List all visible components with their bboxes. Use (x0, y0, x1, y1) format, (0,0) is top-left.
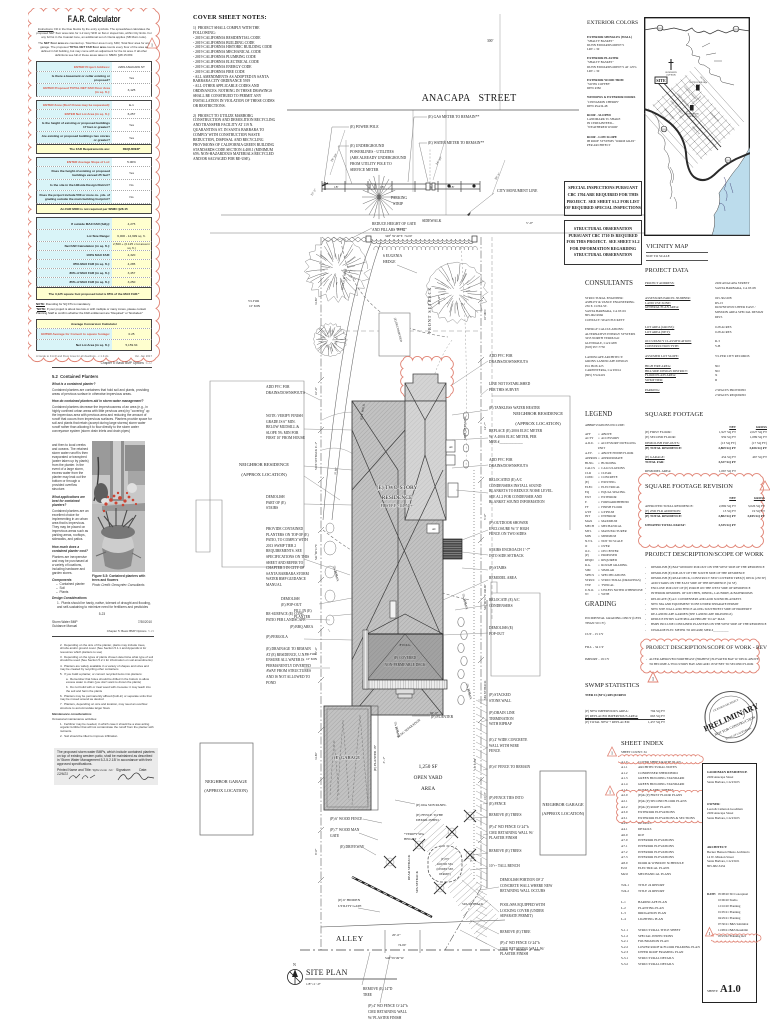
svg-text:CHAPTER 5 IN CITY OF: CHAPTER 5 IN CITY OF (266, 566, 304, 570)
svg-text:HEIGHT: HEIGHT (404, 837, 416, 841)
svg-text:12’-3”: 12’-3” (310, 187, 318, 196)
svg-text:18’: 18’ (334, 185, 339, 189)
svg-text:NEIGHBOR RESIDENCE: NEIGHBOR RESIDENCE (513, 411, 563, 416)
svg-text:MSN: MSN (696, 84, 701, 86)
svg-text:1/8”=1’-0”: 1/8”=1’-0” (306, 982, 321, 986)
svg-text:30’-0”: 30’-0” (437, 295, 441, 304)
svg-text:DEMOLISH: DEMOLISH (281, 597, 300, 601)
svg-text:PLASTER FINISH: PLASTER FINISH (500, 952, 528, 956)
svg-text:(ARE ALREADY UNDERGROUND: (ARE ALREADY UNDERGROUND (350, 156, 407, 160)
svg-text:101: 101 (734, 28, 739, 31)
svg-text:CONDENSERS: CONDENSERS (489, 604, 513, 608)
svg-text:INTO SIDE SETBACK: INTO SIDE SETBACK (489, 554, 524, 558)
svg-text:16’-6”: 16’-6” (314, 387, 318, 395)
svg-text:(P) 7’ WOOD MAN: (P) 7’ WOOD MAN (330, 828, 360, 832)
svg-text:PLANTERS ON TOP OF (E): PLANTERS ON TOP OF (E) (266, 533, 309, 537)
svg-text:DEMOLISH: DEMOLISH (266, 495, 285, 499)
svg-text:LINE NOT ESTABLISHED: LINE NOT ESTABLISHED (489, 382, 531, 386)
svg-text:20’-0”: 20’-0” (392, 933, 401, 937)
svg-text:FENCE: FENCE (489, 749, 501, 753)
svg-text:NEIGHBOR GARAGE: NEIGHBOR GARAGE (542, 802, 584, 807)
svg-text:(APPROX): (APPROX) (687, 115, 697, 118)
svg-text:2013 SWMP TIER 2: 2013 SWMP TIER 2 (266, 544, 296, 548)
svg-text:(P) STAIRS: (P) STAIRS (489, 566, 506, 570)
svg-text:SIDEWALK: SIDEWALK (422, 219, 442, 223)
svg-text:RETAINING WALL OCCURS: RETAINING WALL OCCURS (500, 889, 545, 893)
svg-text:CONDENSERS INSTALL SOUND: CONDENSERS INSTALL SOUND (489, 484, 542, 488)
svg-text:AWAY FROM STRUCTURES: AWAY FROM STRUCTURES (266, 669, 311, 673)
svg-text:BELOW MUDSILL &: BELOW MUDSILL & (266, 425, 299, 429)
svg-text:(P) 8’0: (P) 8’0 (441, 857, 450, 861)
svg-text:(P) 4’ WD FENCE O/ 24”h: (P) 4’ WD FENCE O/ 24”h (368, 1004, 408, 1008)
svg-text:5% FOR: 5% FOR (248, 299, 260, 303)
svg-text:ADD PVC FOR: ADD PVC FOR (489, 458, 513, 462)
svg-text:ADD PVC FOR: ADD PVC FOR (489, 354, 513, 358)
svg-text:STAIRS ENCROACH 1’-7”: STAIRS ENCROACH 1’-7” (489, 548, 531, 552)
svg-text:SITE PLAN: SITE PLAN (306, 968, 348, 977)
svg-text:FROM UTILITY POLE TO: FROM UTILITY POLE TO (350, 162, 392, 166)
svg-text:FIRST 10’ FROM HOUSE: FIRST 10’ FROM HOUSE (266, 436, 306, 440)
svg-text:(E) POWER POLE: (E) POWER POLE (350, 125, 379, 129)
svg-text:10’ MIN: 10’ MIN (466, 688, 473, 700)
svg-text:FRONT SETBACK: FRONT SETBACK (427, 287, 432, 334)
svg-text:CMU RETAINING WALL W/: CMU RETAINING WALL W/ (500, 947, 544, 951)
svg-text:TREE: TREE (363, 993, 373, 997)
svg-text:5’-0”: 5’-0” (526, 221, 534, 225)
svg-text:AND PILLARS TO 42”: AND PILLARS TO 42” (372, 228, 407, 232)
svg-text:N: N (293, 962, 296, 967)
svg-text:(E) PLANTER 18”: (E) PLANTER 18” (373, 744, 377, 771)
svg-text:DEMOLISH PORTION OF 2’: DEMOLISH PORTION OF 2’ (500, 878, 544, 882)
svg-text:OPEN YARD: OPEN YARD (414, 775, 443, 781)
svg-text:WALL WITH WIRE: WALL WITH WIRE (489, 744, 520, 748)
svg-text:HEDGE: HEDGE (383, 260, 396, 264)
svg-text:10’ MIN: 10’ MIN (394, 726, 401, 738)
svg-text:S41°00’11”E 160.00’: S41°00’11”E 160.00’ (483, 584, 487, 610)
svg-text:14’-7”: 14’-7” (483, 422, 487, 430)
svg-text:(E) FENCE TO BE: (E) FENCE TO BE (416, 813, 443, 817)
svg-text:10’ MIN: 10’ MIN (249, 304, 261, 308)
svg-text:SPECIFICATIONS ON THIS: SPECIFICATIONS ON THIS (266, 555, 309, 559)
svg-text:DRAINS/DOWNSPOUTS: DRAINS/DOWNSPOUTS (489, 360, 528, 364)
svg-text:SPA SETBACK: SPA SETBACK (462, 902, 484, 906)
svg-text:31.80’: 31.80’ (314, 297, 318, 305)
svg-text:DEMOLISHED: DEMOLISHED (416, 818, 439, 822)
svg-text:(E) UNDERGROUND: (E) UNDERGROUND (350, 144, 384, 148)
svg-text:(P) 60A SUB PANEL: (P) 60A SUB PANEL (416, 803, 447, 807)
svg-text:RELOCATED (E) A/C: RELOCATED (E) A/C (489, 478, 523, 482)
svg-text:(P) OUTDOOR SHOWER: (P) OUTDOOR SHOWER (489, 521, 529, 525)
svg-text:NEIGHBOR GARAGE: NEIGHBOR GARAGE (205, 779, 247, 784)
svg-text:(P) BBQ AREA: (P) BBQ AREA (290, 625, 314, 629)
svg-text:UTILITY GATE: UTILITY GATE (338, 904, 362, 908)
svg-text:10’ MIN: 10’ MIN (333, 570, 340, 582)
svg-text:S48°59’49”W: S48°59’49”W (385, 956, 405, 960)
svg-text:(APPROX LOCATION): (APPROX LOCATION) (241, 472, 287, 477)
svg-text:POOL/SPA EQUIPPED WITH: POOL/SPA EQUIPPED WITH (500, 903, 545, 907)
svg-text:PLASTER FINISH: PLASTER FINISH (489, 836, 517, 840)
svg-text:HEDGE 6’ HIGH: HEDGE 6’ HIGH (340, 268, 348, 291)
svg-text:PERMANENTLY DIVERTED: PERMANENTLY DIVERTED (266, 664, 311, 668)
svg-text:(E) DRIVEWAY: (E) DRIVEWAY (340, 845, 365, 849)
svg-text:(APPROX LOCATION): (APPROX LOCATION) (542, 811, 585, 816)
svg-text:REDUCE HEIGHT OF GATE: REDUCE HEIGHT OF GATE (372, 222, 417, 226)
svg-text:10’+- TALL BENCH: 10’+- TALL BENCH (489, 864, 520, 868)
svg-text:(E) TWO-STORY: (E) TWO-STORY (377, 484, 418, 491)
svg-text:ANACAPA STREET: ANACAPA STREET (422, 93, 517, 104)
svg-text:STAIRS: STAIRS (266, 506, 278, 510)
svg-text:REMOVE (E) TREE: REMOVE (E) TREE (500, 930, 531, 934)
svg-text:74.00’: 74.00’ (398, 943, 407, 947)
svg-text:AREA: AREA (421, 786, 435, 792)
svg-text:3’-1”: 3’-1” (382, 756, 386, 763)
svg-text:ENSURE ALL WATER IS: ENSURE ALL WATER IS (266, 658, 304, 662)
svg-text:101: 101 (726, 159, 731, 162)
svg-text:SEE A1.2 FOR CONDENSER AND: SEE A1.2 FOR CONDENSER AND (489, 495, 542, 499)
svg-text:1: 1 (609, 790, 611, 795)
svg-text:NOTE: VERIFY FINISH: NOTE: VERIFY FINISH (266, 414, 303, 418)
svg-text:GATE: GATE (330, 834, 340, 838)
svg-text:8’0 CLG: 8’0 CLG (400, 643, 412, 647)
svg-text:LOCKING COVER (UNDER: LOCKING COVER (UNDER (500, 909, 544, 913)
svg-text:GRADE IS 6” MIN.: GRADE IS 6” MIN. (266, 420, 296, 424)
svg-text:PART OF (E): PART OF (E) (266, 501, 286, 505)
svg-text:(E) 6’ FENCE TO REMAIN: (E) 6’ FENCE TO REMAIN (489, 765, 531, 769)
svg-text:CMU RETAINING WALL: CMU RETAINING WALL (368, 1010, 407, 1014)
svg-text:SHEET AND REFER TO: SHEET AND REFER TO (266, 561, 304, 565)
svg-text:1,250 SF: 1,250 SF (419, 764, 438, 770)
svg-text:SANTA BARBARA STORM: SANTA BARBARA STORM (266, 572, 310, 576)
svg-text:(P) FENCE TIES INTO: (P) FENCE TIES INTO (489, 796, 524, 800)
svg-text:*VERIFY SPA: *VERIFY SPA (404, 832, 425, 836)
svg-text:(E) POP-OUT: (E) POP-OUT (281, 603, 302, 607)
svg-text:PLANTER: PLANTER (294, 615, 311, 619)
svg-text:REMOVE (E) TREES: REMOVE (E) TREES (489, 813, 521, 817)
svg-text:101: 101 (662, 128, 667, 131)
svg-text:REQUIREMENTS. SEE: REQUIREMENTS. SEE (266, 549, 303, 553)
svg-text:101: 101 (658, 27, 663, 30)
svg-text:AC: AC (449, 445, 453, 449)
svg-text:31.80’: 31.80’ (314, 752, 318, 760)
svg-text:5’-0”: 5’-0” (483, 513, 487, 520)
svg-text:FILL IN (E): FILL IN (E) (294, 609, 312, 613)
svg-text:(E) GAS METER TO REMAIN**: (E) GAS METER TO REMAIN** (428, 115, 479, 119)
svg-text:AC: AC (432, 527, 436, 531)
svg-text:FIRST F.F. +111.74’+-: FIRST F.F. +111.74’+- (381, 504, 415, 508)
svg-text:REPLACE (E) 200A ELEC METER: REPLACE (E) 200A ELEC METER (489, 429, 543, 433)
svg-text:PATIO, TO COMPLY WITH: PATIO, TO COMPLY WITH (266, 538, 308, 543)
svg-text:AND IS NOT ALLOWED TO: AND IS NOT ALLOWED TO (266, 675, 311, 679)
svg-text:DRAINS/DOWNSPOUTS: DRAINS/DOWNSPOUTS (489, 464, 528, 468)
svg-text:REMOVE (E) TREES: REMOVE (E) TREES (489, 849, 521, 853)
svg-text:POWERLINES - UTILITIES: POWERLINES - UTILITIES (350, 150, 394, 154)
svg-text:(P) STACKED: (P) STACKED (489, 693, 511, 697)
svg-text:CMU RETAINING WALL W/: CMU RETAINING WALL W/ (489, 831, 533, 835)
svg-text:(P) 6’ HIDDEN: (P) 6’ HIDDEN (338, 898, 361, 902)
svg-text:10’ MIN: 10’ MIN (483, 309, 487, 320)
svg-text:REMODEL AREA: REMODEL AREA (489, 576, 517, 580)
svg-text:S41°00’11”E: S41°00’11”E (314, 544, 318, 560)
svg-text:SEPARATE PERMIT): SEPARATE PERMIT) (500, 914, 534, 918)
svg-text:(E) 2’ WIDE CONCRETE: (E) 2’ WIDE CONCRETE (489, 738, 528, 742)
svg-text:(P) DRAIN LINE: (P) DRAIN LINE (489, 711, 516, 715)
svg-text:SLOPE 5% MIN FOR: SLOPE 5% MIN FOR (266, 431, 299, 435)
svg-text:BLANKETS TO REDUCE NOISE LEVEL: BLANKETS TO REDUCE NOISE LEVEL. (489, 489, 553, 493)
svg-text:1: 1 (611, 751, 613, 756)
svg-text:(P) 4’ WD FENCE O/ 24”h: (P) 4’ WD FENCE O/ 24”h (489, 825, 529, 829)
svg-text:(E) DRAINAGE TO REMAIN: (E) DRAINAGE TO REMAIN (266, 647, 311, 651)
svg-text:(P) PLANTER: (P) PLANTER (431, 715, 454, 719)
svg-text:SPA SETBACK: SPA SETBACK (415, 870, 419, 893)
svg-text:(APPROX LOCATION): (APPROX LOCATION) (515, 421, 561, 426)
svg-text:8’-0”: 8’-0” (314, 848, 318, 855)
svg-text:PARKING: PARKING (391, 196, 407, 200)
svg-text:REAR SETBACK: REAR SETBACK (407, 854, 411, 880)
svg-text:TERMINATION: TERMINATION (489, 717, 514, 721)
svg-text:300’: 300’ (487, 39, 494, 43)
svg-text:16’-4”: 16’-4” (314, 647, 318, 655)
svg-text:MER #_____________: MER #_____________ (489, 440, 523, 444)
svg-text:SPA SETBACK: SPA SETBACK (483, 680, 487, 700)
svg-text:ALLEY: ALLEY (336, 934, 364, 943)
svg-text:WITH RIPRAP: WITH RIPRAP (489, 722, 512, 726)
svg-text:RESIDENCE: RESIDENCE (382, 495, 413, 501)
svg-text:(P) PERGOLA: (P) PERGOLA (266, 635, 288, 639)
svg-text:W/ PLASTER FINISH: W/ PLASTER FINISH (368, 1016, 402, 1020)
svg-text:18’: 18’ (450, 185, 455, 189)
svg-text:10’ O/H: 10’ O/H (473, 758, 477, 770)
svg-text:(P) COVERED: (P) COVERED (394, 656, 417, 660)
svg-text:NEIGHBOR RESIDENCE: NEIGHBOR RESIDENCE (239, 462, 289, 467)
svg-text:POP-OUT: POP-OUT (489, 632, 505, 636)
svg-text:DRAINS/DOWNSPOUTS: DRAINS/DOWNSPOUTS (266, 391, 305, 395)
svg-text:(E) GARAGE: (E) GARAGE (334, 755, 360, 760)
svg-text:POND: POND (266, 681, 276, 685)
svg-text:SITE: SITE (656, 78, 666, 83)
svg-text:STRIP: STRIP (393, 202, 403, 206)
svg-text:SIDE SETBACK: SIDE SETBACK (463, 416, 467, 440)
svg-text:PROVIDE CONTAINED: PROVIDE CONTAINED (266, 527, 304, 531)
svg-text:10’ MIN: 10’ MIN (306, 657, 318, 661)
svg-text:RELOCATE (E) A/C: RELOCATE (E) A/C (489, 598, 520, 602)
svg-text:ENCLOSURE W/ 5’ HIGH: ENCLOSURE W/ 5’ HIGH (489, 527, 529, 531)
svg-text:WATER BMP GUIDANCE: WATER BMP GUIDANCE (266, 577, 307, 581)
svg-text:348° 59’49”E 74.00’: 348° 59’49”E 74.00’ (385, 234, 412, 238)
svg-text:(E) WATER METER TO REMAIN**: (E) WATER METER TO REMAIN** (428, 141, 484, 145)
svg-text:REMOVE (E) 14”D: REMOVE (E) 14”D (363, 987, 393, 991)
svg-text:FENCE ON TWO SIDES: FENCE ON TWO SIDES (489, 532, 526, 536)
svg-text:BLANKET SOUND INFORMATION: BLANKET SOUND INFORMATION (489, 500, 545, 504)
svg-text:(P) TANKLESS WATER HEATER: (P) TANKLESS WATER HEATER (489, 406, 540, 410)
svg-text:ADD PVC FOR: ADD PVC FOR (266, 385, 290, 389)
svg-text:(P) 6’ WOOD FENCE: (P) 6’ WOOD FENCE (330, 817, 363, 821)
svg-text:CITY MONUMENT LINE: CITY MONUMENT LINE (497, 189, 538, 193)
svg-text:MANUAL: MANUAL (266, 583, 282, 587)
svg-text:STONE WALL: STONE WALL (489, 699, 511, 703)
svg-text:PER THIS SURVEY: PER THIS SURVEY (489, 388, 520, 392)
svg-text:DEMOLISH (E): DEMOLISH (E) (489, 626, 514, 630)
svg-text:1: 1 (708, 931, 710, 936)
svg-text:(APPROX LOCATION): (APPROX LOCATION) (204, 788, 248, 793)
svg-text:SERVICE METER: SERVICE METER (350, 168, 379, 172)
svg-text:SIDE SETBACK 6’-1”: SIDE SETBACK 6’-1” (314, 441, 318, 470)
svg-text:15’-3”: 15’-3” (483, 792, 487, 800)
svg-text:CONCRETE WALL WHERE NEW: CONCRETE WALL WHERE NEW (500, 884, 553, 888)
svg-text:(E) FENCE: (E) FENCE (489, 802, 507, 806)
svg-text:31.80’: 31.80’ (333, 467, 338, 475)
svg-text:6 EUGENIA: 6 EUGENIA (383, 254, 402, 258)
svg-text:(P) 4’ WD FENCE O/ 24”h: (P) 4’ WD FENCE O/ 24”h (500, 941, 540, 945)
svg-text:(APPROX): (APPROX) (666, 74, 676, 77)
svg-text:NON-PERMEABLE DECK: NON-PERMEABLE DECK (384, 663, 425, 667)
